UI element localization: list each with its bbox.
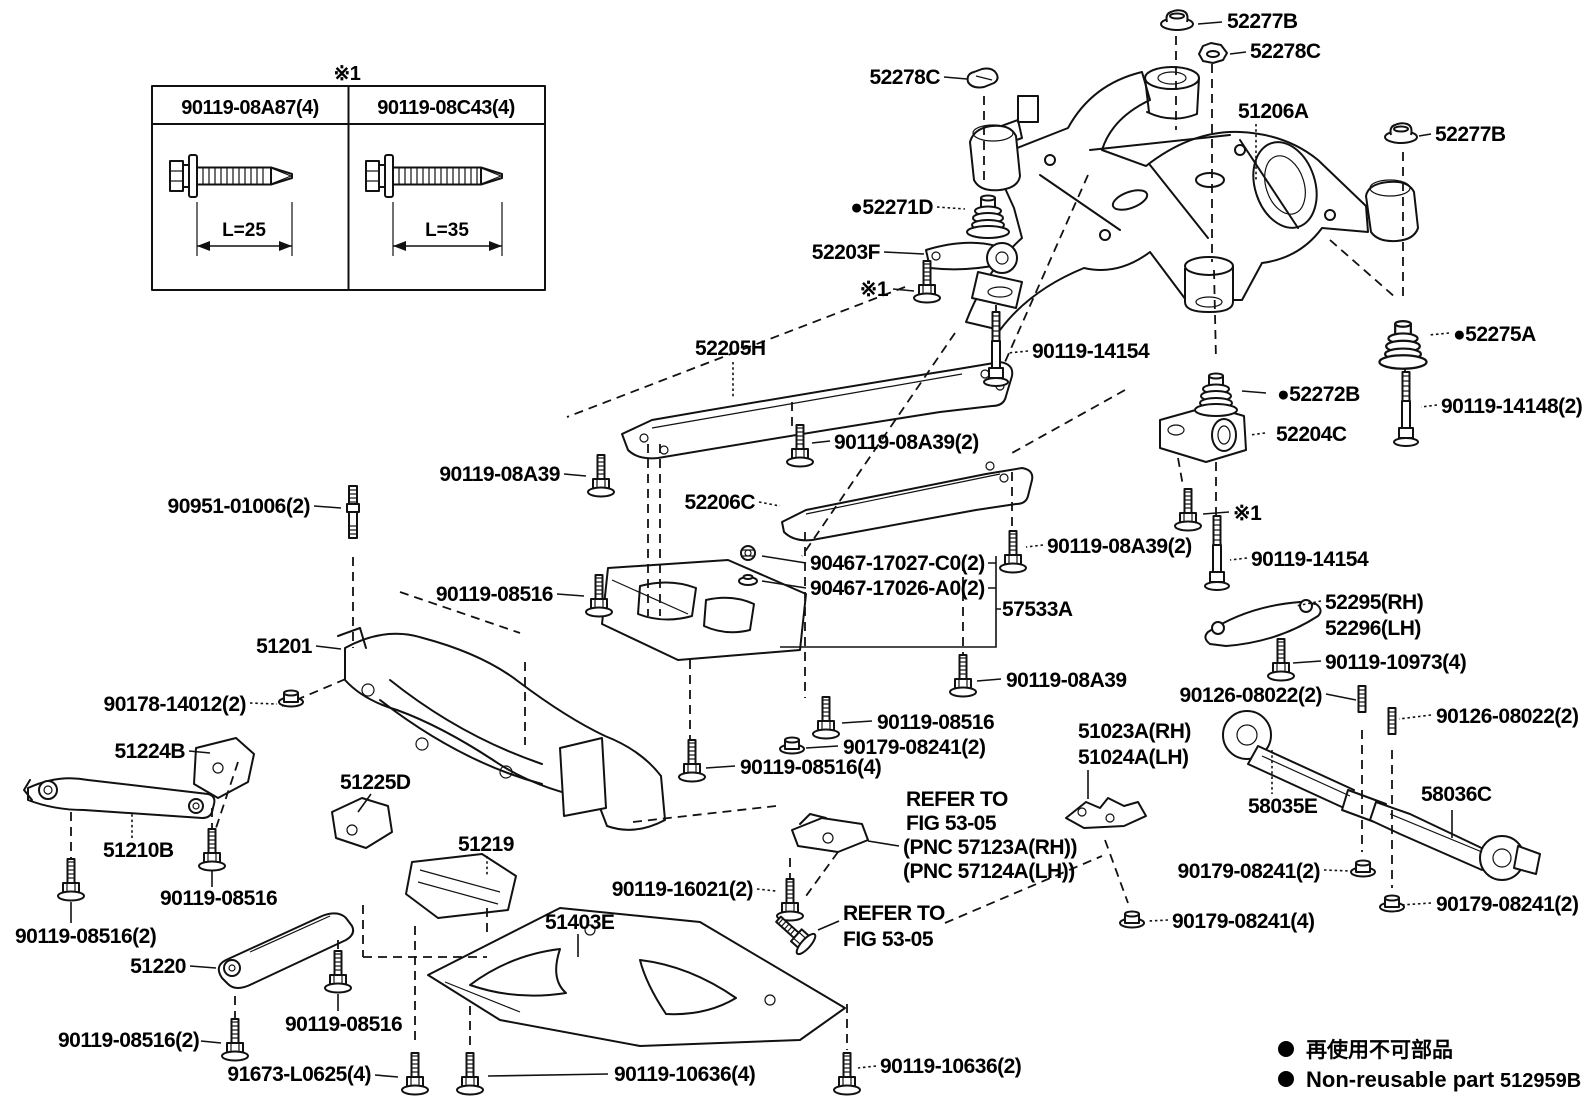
non-reusable-bullet-icon (1278, 1041, 1294, 1057)
legend-jp-text: 再使用不可部品 (1306, 1038, 1453, 1062)
bolt-90119-08A39 (588, 455, 614, 497)
label-52275A: ●52275A (1453, 323, 1536, 346)
stud-90951-01006 (347, 486, 359, 538)
bushing-52272B (1195, 374, 1237, 417)
clip-52278C-left (968, 69, 998, 88)
bolt-90119-08516-5 (222, 1019, 248, 1061)
part-member-stopper-plate (1205, 600, 1320, 646)
bolt-90119-08516-6 (813, 697, 839, 739)
part-floor-brace-rear (1370, 802, 1540, 880)
label-PNC57124ALH: (PNC 57124A(LH)) (903, 860, 1075, 883)
note-table-reference-mark: ※1 (334, 63, 361, 85)
label-※1: ※1 (1233, 502, 1262, 525)
bolt-90119-08516-3 (199, 829, 225, 871)
label-9011908516: 90119-08516 (436, 583, 553, 606)
label-90179082412: 90179-08241(2) (1436, 893, 1578, 916)
label-51023ARH: 51023A(RH) (1078, 720, 1191, 743)
bolt-90119-08A39-3 (1000, 531, 1026, 573)
label-PNC57123ARH: (PNC 57123A(RH)) (903, 836, 1077, 859)
part-suspension-member-bracket (1066, 798, 1146, 828)
label-9011908A39: 90119-08A39 (1006, 669, 1127, 692)
legend: 再使用不可部品 Non-reusable part 512959B (1278, 1038, 1581, 1092)
bolt-length-dim-1: L=25 (222, 220, 266, 241)
part-crossmember-cover (406, 854, 516, 918)
label-90119106364: 90119-10636(4) (614, 1063, 755, 1086)
bolt-90467-17027 (741, 546, 755, 560)
nut-90179-08241-4 (1120, 912, 1144, 928)
label-90179082412: 90179-08241(2) (1178, 860, 1320, 883)
label-90119109734: 90119-10973(4) (1325, 651, 1466, 674)
bushing-52275A (1379, 321, 1426, 369)
label-58035E: 58035E (1248, 795, 1318, 818)
label-51024ALH: 51024A(LH) (1078, 746, 1189, 769)
grommet-52277B-right (1385, 123, 1417, 143)
bolt-note1-right (1175, 489, 1201, 531)
label-51220: 51220 (130, 955, 186, 978)
part-suspension-member-brace-rear (782, 462, 1032, 540)
bolt-91673-L0625 (402, 1053, 428, 1095)
label-90119106362: 90119-10636(2) (880, 1055, 1021, 1078)
part-engine-under-cover (602, 560, 806, 660)
bolt-length-dim-2: L=35 (425, 220, 469, 241)
label-52278C: 52278C (869, 66, 940, 89)
label-52203F: 52203F (812, 241, 881, 264)
nut-90178-14012 (279, 691, 303, 707)
label-90951010062: 90951-01006(2) (168, 495, 310, 518)
nut-90179-08241-center (780, 738, 804, 754)
label-51403E: 51403E (545, 911, 615, 934)
label-52205H: 52205H (695, 337, 766, 360)
bolt-l25-drawing: L=25 (170, 155, 292, 256)
label-9011908516: 90119-08516 (285, 1013, 402, 1036)
figure-code: 512959B (1500, 1070, 1581, 1092)
label-90119085164: 90119-08516(4) (740, 756, 881, 779)
grommet-52277B-top (1161, 10, 1193, 30)
label-52295RH: 52295(RH) (1325, 591, 1423, 614)
label-52277B: 52277B (1227, 10, 1298, 33)
label-9011908516: 90119-08516 (877, 711, 994, 734)
non-reusable-bullet-icon (1278, 1071, 1294, 1087)
label-52272B: ●52272B (1277, 383, 1360, 406)
label-90178140122: 90178-14012(2) (104, 693, 246, 716)
label-51225D: 51225D (340, 771, 411, 794)
bolt-90119-10636-4 (457, 1053, 483, 1095)
bolt-90119-08516-2 (58, 859, 84, 901)
label-52296LH: 52296(LH) (1325, 617, 1421, 640)
parts-diagram-page: 52277B52278C52278C51206A52277B●52271D522… (0, 0, 1592, 1099)
label-51224B: 51224B (114, 740, 185, 763)
label-9011908516: 90119-08516 (160, 887, 277, 910)
label-9011908A39: 90119-08A39 (439, 463, 560, 486)
bushing-52271D (967, 196, 1009, 239)
note-table-part-number-2: 90119-08C43(4) (377, 97, 515, 119)
label-51210B: 51210B (103, 839, 174, 862)
bolt-size-note-table: ※1 90119-08A87(4) 90119-08C43(4) L=25 (152, 63, 545, 290)
label-9011908A392: 90119-08A39(2) (1047, 535, 1192, 558)
label-52278C: 52278C (1250, 40, 1321, 63)
bolt-90119-08516-7 (679, 740, 705, 782)
bolt-90119-14148 (1394, 372, 1418, 446)
bolt-90119-10636-2 (834, 1053, 860, 1095)
stud-90126-08022-left (1359, 686, 1366, 712)
label-90126080222: 90126-08022(2) (1436, 705, 1578, 728)
stud-90126-08022-right (1389, 708, 1396, 734)
label-52277B: 52277B (1435, 123, 1506, 146)
legend-en-text: Non-reusable part (1306, 1067, 1495, 1092)
label-90179082414: 90179-08241(4) (1172, 910, 1314, 933)
part-crossmember-bracket (194, 738, 254, 798)
label-52204C: 52204C (1276, 423, 1347, 446)
part-front-crossmember (338, 628, 665, 830)
label-57533A: 57533A (1002, 598, 1073, 621)
bolt-90119-14154-right (1205, 516, 1229, 590)
label-FIG5305: FIG 53-05 (843, 928, 934, 951)
bolt-90119-10973 (1268, 639, 1294, 681)
label-※1: ※1 (860, 278, 889, 301)
label-90119160212: 90119-16021(2) (612, 878, 753, 901)
label-52206C: 52206C (684, 491, 755, 514)
label-9046717026A02: 90467-17026-A0(2) (810, 577, 985, 600)
label-9046717027C02: 90467-17027-C0(2) (810, 552, 985, 575)
label-9011914154: 90119-14154 (1251, 548, 1369, 571)
label-90119141482: 90119-14148(2) (1441, 395, 1582, 418)
label-58036C: 58036C (1421, 783, 1492, 806)
bolt-l35-drawing: L=35 (366, 155, 502, 256)
label-91673L06254: 91673-L0625(4) (227, 1063, 371, 1086)
nut-90179-08241-right (1380, 896, 1404, 912)
part-pnc-stay-bracket (792, 814, 868, 852)
label-51201: 51201 (256, 635, 313, 658)
label-51206A: 51206A (1238, 100, 1309, 123)
note-table-part-number-1: 90119-08A87(4) (181, 97, 319, 119)
part-rear-suspension-member (966, 67, 1418, 330)
part-lower-arm-front (24, 778, 214, 818)
label-90119085162: 90119-08516(2) (15, 925, 156, 948)
label-9011908A392: 90119-08A39(2) (834, 431, 979, 454)
label-51219: 51219 (458, 833, 514, 856)
nut-90179-08241-left (1351, 861, 1375, 877)
bolt-90119-16021 (777, 879, 803, 921)
label-90126080222: 90126-08022(2) (1180, 684, 1322, 707)
label-REFERTO: REFER TO (906, 788, 1008, 811)
label-52271D: ●52271D (850, 196, 933, 219)
label-FIG5305: FIG 53-05 (906, 812, 997, 835)
bolt-90119-08516-4 (325, 951, 351, 993)
label-9011914154: 90119-14154 (1032, 340, 1150, 363)
label-90119085162: 90119-08516(2) (58, 1029, 199, 1052)
parts-diagram-canvas: 52277B52278C52278C51206A52277B●52271D522… (0, 0, 1592, 1099)
bolt-90119-08A39-4 (950, 655, 976, 697)
label-REFERTO: REFER TO (843, 902, 945, 925)
capnut-52278C-top (1199, 43, 1227, 63)
